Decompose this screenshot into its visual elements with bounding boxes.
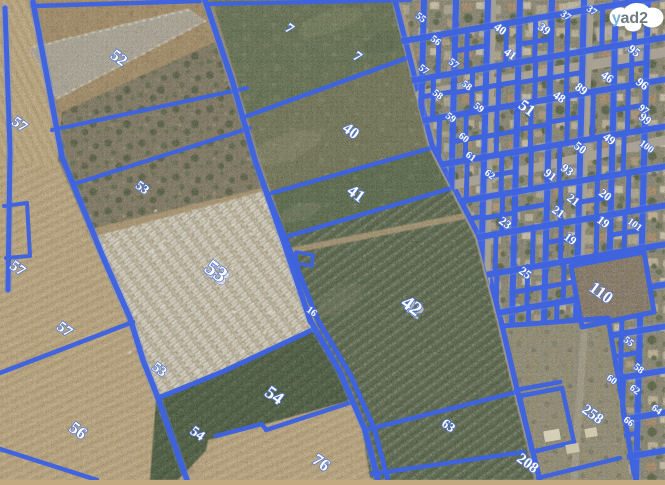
svg-text:ad2: ad2 <box>621 10 649 27</box>
